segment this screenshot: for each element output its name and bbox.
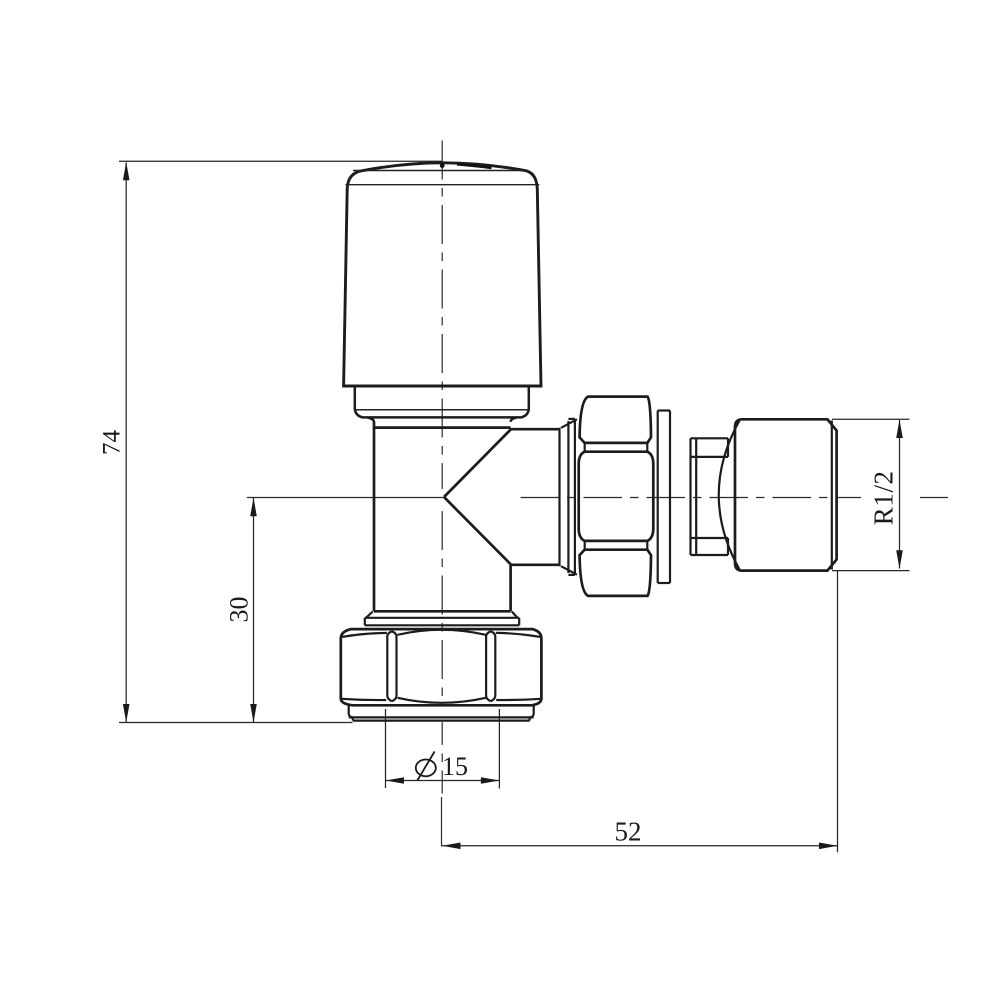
svg-text:74: 74 — [99, 430, 126, 456]
svg-text:R1/2: R1/2 — [869, 470, 899, 525]
svg-text:30: 30 — [224, 597, 253, 623]
svg-text:15: 15 — [442, 752, 468, 781]
svg-text:52: 52 — [615, 816, 642, 846]
